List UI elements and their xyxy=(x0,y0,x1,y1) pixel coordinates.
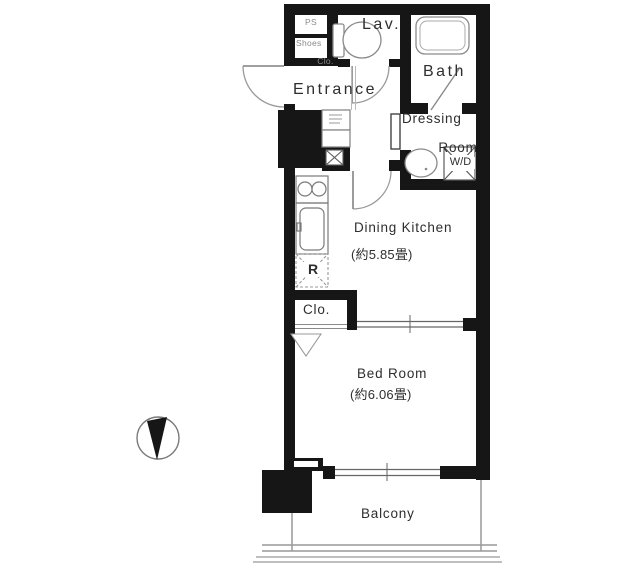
entrance-label: Entrance xyxy=(293,81,377,98)
window-icon xyxy=(335,463,440,481)
refrigerator-label: R xyxy=(302,262,324,277)
floor-plan-page: PS Shoes Clo. Lav. Bath Entrance Dressin… xyxy=(0,0,640,569)
meter-box-icon xyxy=(326,150,343,165)
shoes-closet-label: Shoes Clo. xyxy=(296,39,334,67)
entrance-door-swing-icon xyxy=(243,66,284,107)
washer-dryer-label: W/D xyxy=(446,157,475,169)
closet-door-swing-icon xyxy=(291,334,321,356)
bath-label: Bath xyxy=(423,63,466,80)
dining-kitchen-label: Dining Kitchen xyxy=(354,221,452,236)
bedroom-label: Bed Room xyxy=(357,367,427,382)
balcony-step-slot xyxy=(294,461,318,467)
kitchen-sink-icon xyxy=(296,203,328,254)
stove-icon xyxy=(296,176,328,203)
kitchen-door-swing-icon xyxy=(353,171,391,209)
sliding-door-icon xyxy=(357,315,463,333)
dressing-room-label: Dressing Room xyxy=(402,112,478,156)
hall-storage-box xyxy=(322,110,350,147)
north-compass-icon xyxy=(137,417,179,460)
bedroom-size: (約6.06畳) xyxy=(350,388,412,402)
balcony-label: Balcony xyxy=(361,507,415,522)
dining-kitchen-size: (約5.85畳) xyxy=(351,248,413,262)
dressing-room-door-leaf xyxy=(391,114,400,149)
ps-label: PS xyxy=(295,18,327,27)
closet-door-lines xyxy=(295,325,347,329)
bathtub-icon xyxy=(416,17,469,54)
lavatory-label: Lav. xyxy=(362,16,401,33)
closet-label: Clo. xyxy=(303,303,330,318)
